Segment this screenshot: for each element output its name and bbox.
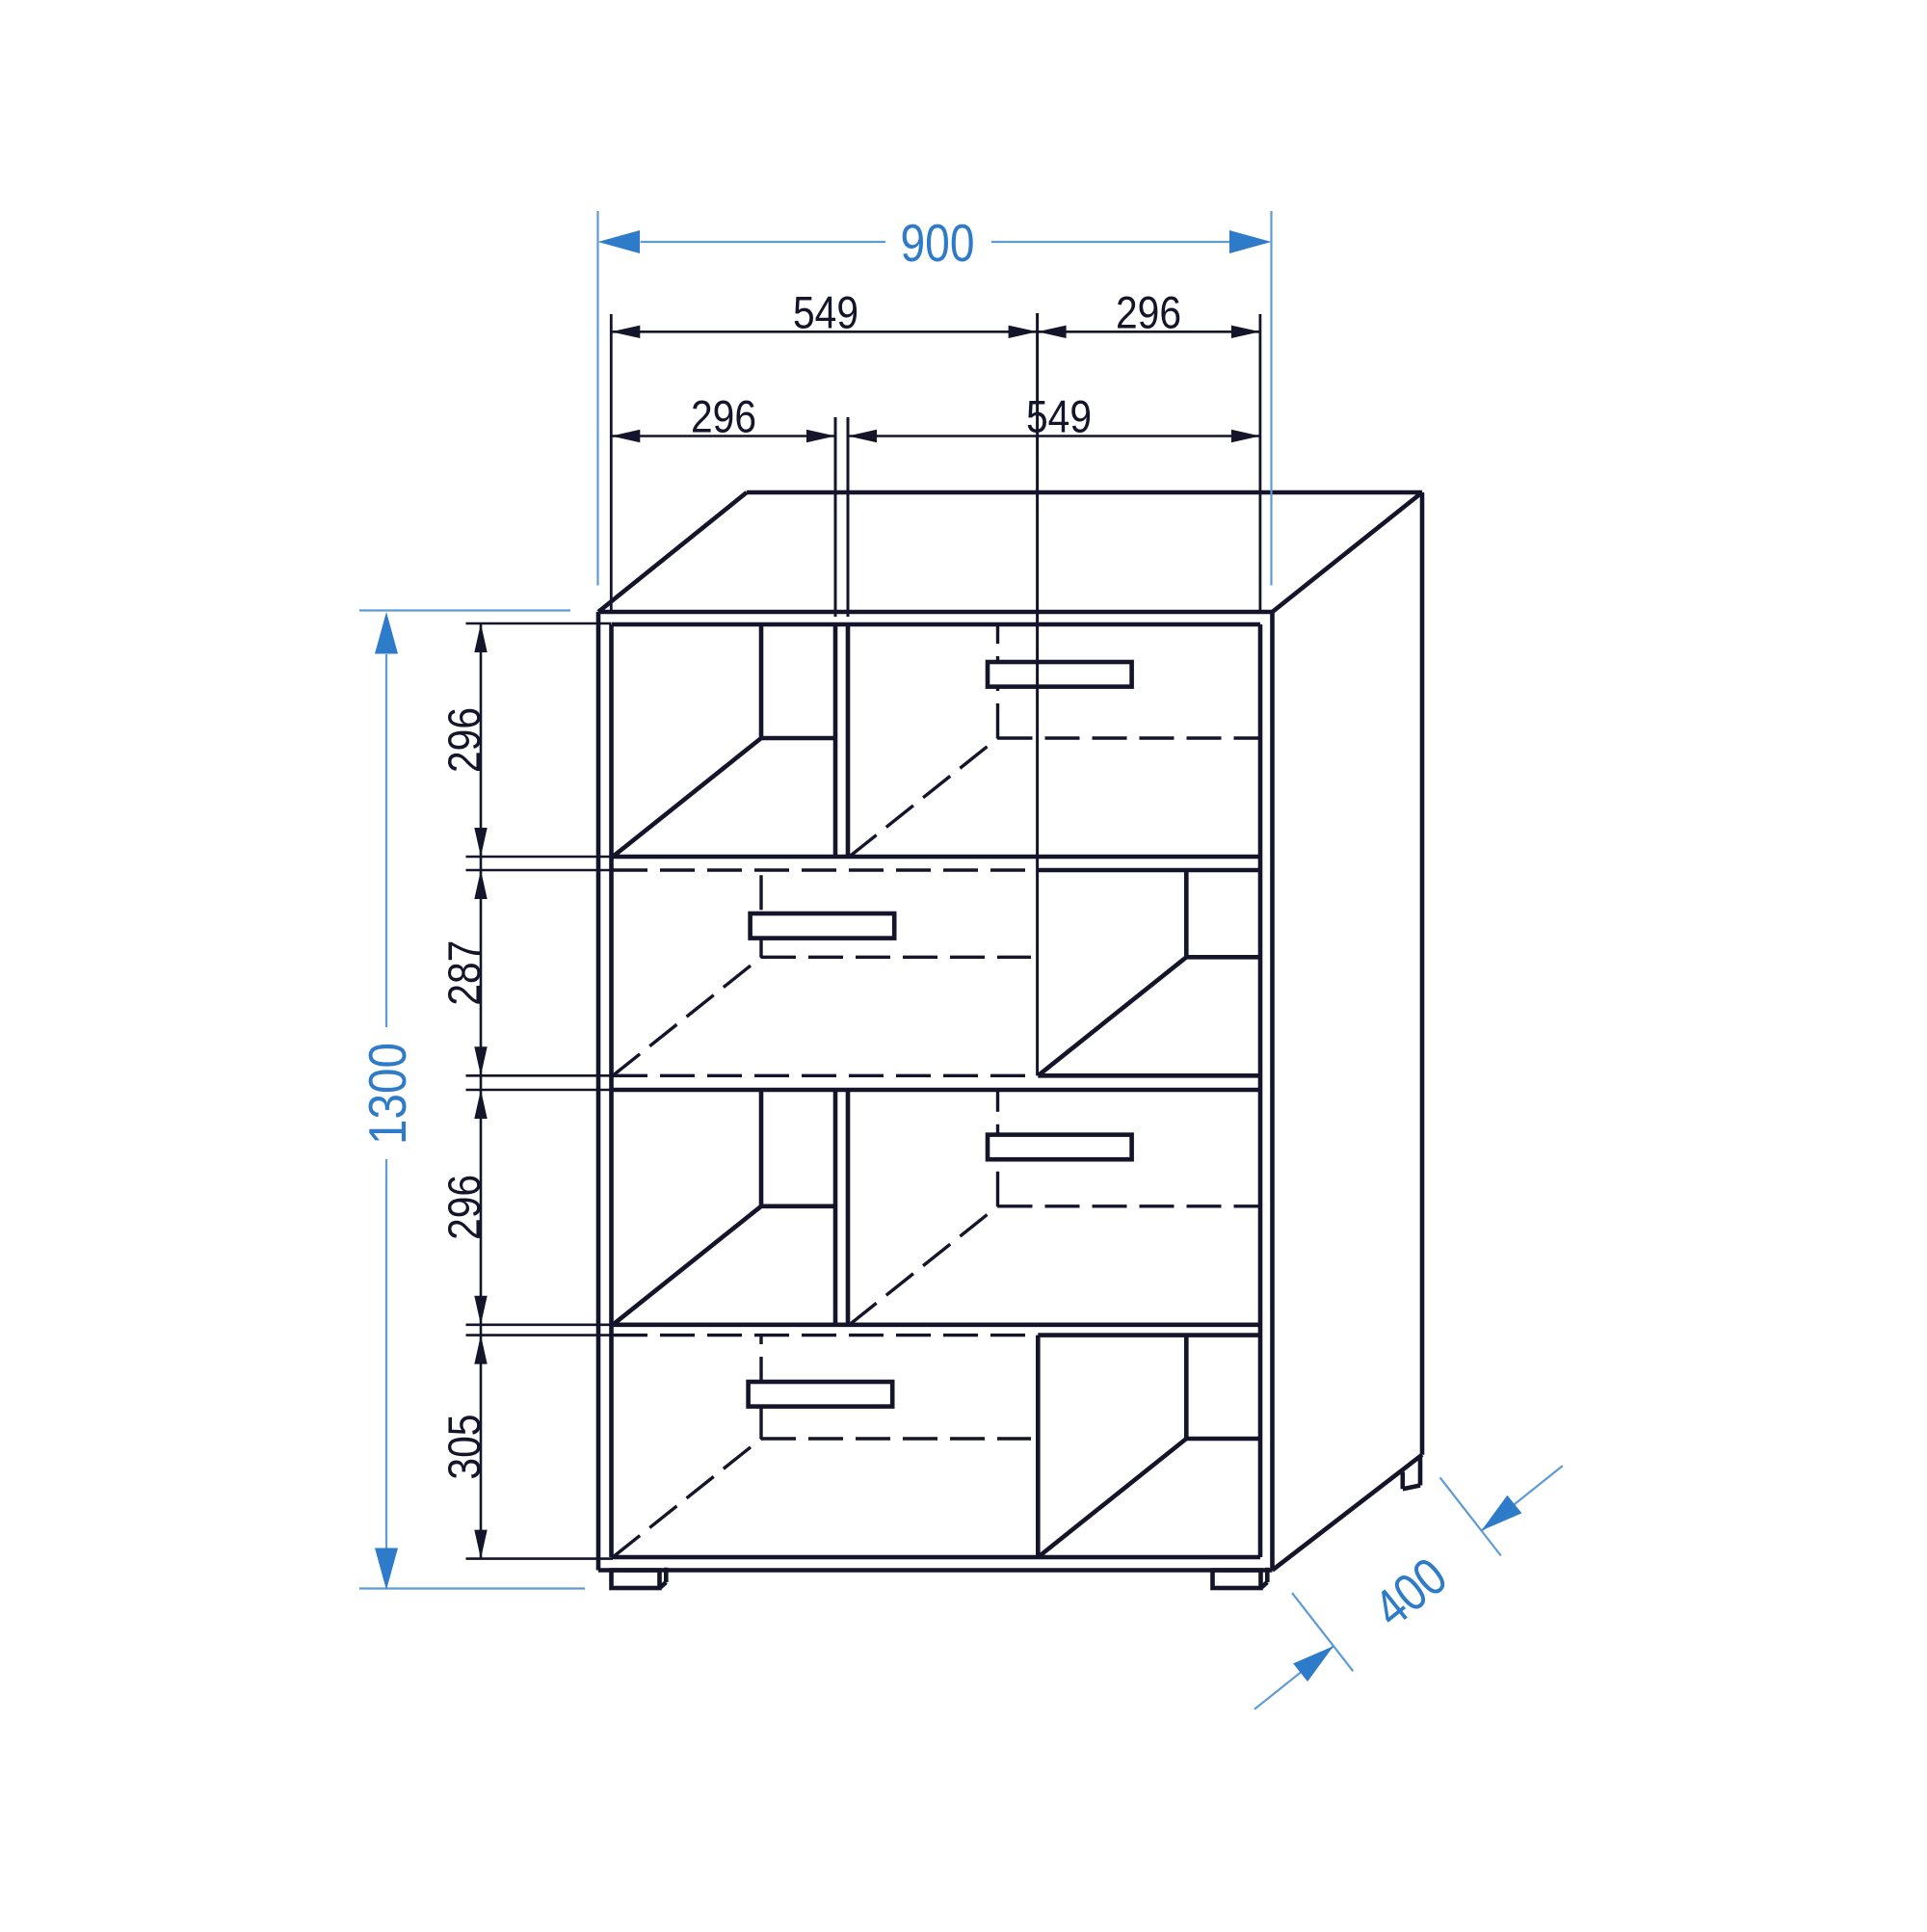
svg-text:305: 305 <box>439 1415 490 1480</box>
svg-text:549: 549 <box>793 287 858 338</box>
svg-text:296: 296 <box>439 707 490 773</box>
svg-text:296: 296 <box>691 392 756 443</box>
svg-text:296: 296 <box>439 1175 490 1240</box>
svg-text:900: 900 <box>901 214 975 273</box>
svg-text:1300: 1300 <box>358 1043 417 1145</box>
svg-text:296: 296 <box>1116 287 1181 338</box>
svg-text:287: 287 <box>439 940 490 1006</box>
